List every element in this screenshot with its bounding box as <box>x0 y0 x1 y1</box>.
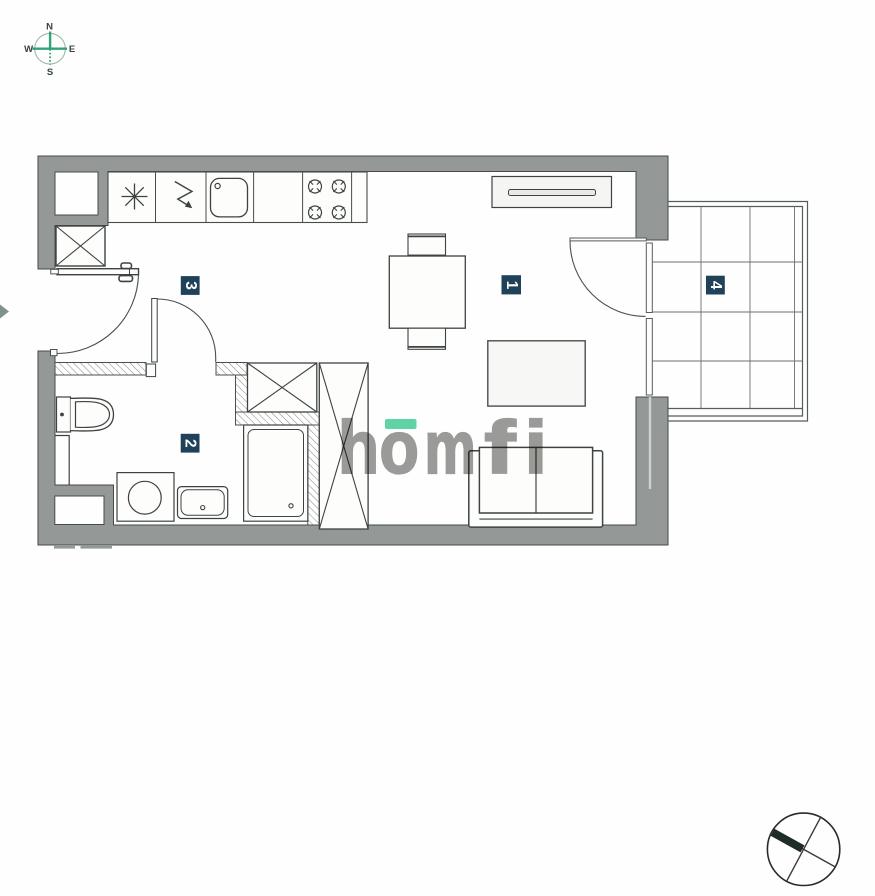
svg-text:1: 1 <box>503 281 520 290</box>
svg-text:2: 2 <box>182 439 199 448</box>
svg-text:3: 3 <box>182 281 199 290</box>
svg-text:N: N <box>46 22 53 33</box>
svg-text:W: W <box>24 44 33 55</box>
svg-text:o: o <box>380 406 419 489</box>
svg-text:S: S <box>47 67 53 78</box>
svg-text:h: h <box>338 406 379 489</box>
svg-text:f: f <box>485 406 517 489</box>
svg-text:4: 4 <box>707 281 724 290</box>
svg-text:m: m <box>425 407 476 490</box>
svg-text:E: E <box>69 44 75 55</box>
svg-text:i: i <box>525 407 548 489</box>
